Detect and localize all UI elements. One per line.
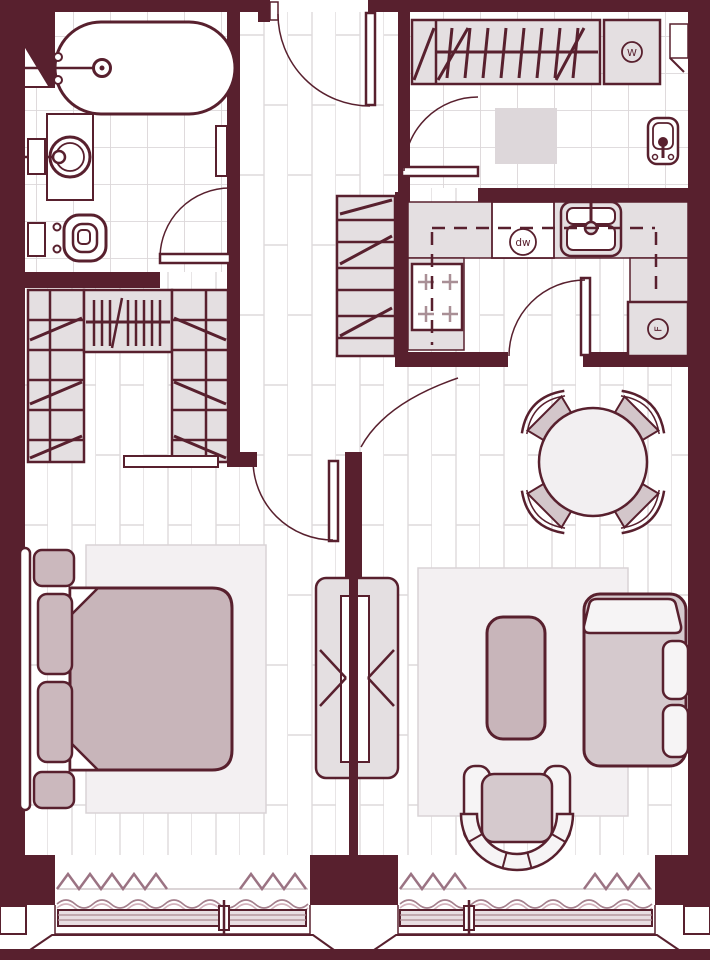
- wall-kitchen-south-a: [395, 352, 508, 367]
- dishwasher-label: dw: [515, 237, 531, 249]
- closet-unit-hangers: [84, 290, 172, 352]
- bed-duvet: [70, 588, 232, 770]
- curtain-zigzag: [584, 874, 650, 889]
- laundry-mat: [495, 108, 557, 164]
- closet-threshold: [124, 456, 218, 467]
- kitchen-door-leaf: [581, 278, 590, 355]
- sofa-back-cushion-2: [663, 705, 688, 757]
- entry-door-jamb: [258, 0, 270, 22]
- pillow-top: [38, 594, 72, 674]
- window-pier-right: [655, 855, 710, 905]
- balcony-edge-strip: [0, 951, 710, 960]
- wall-through-wardrobe: [349, 578, 358, 778]
- floor-plan-drawing: W dw: [0, 0, 710, 960]
- curtain-zigzag: [57, 874, 167, 889]
- armchair-seat: [482, 774, 552, 842]
- laundry-basin: [648, 118, 678, 164]
- cistern-panel: [28, 223, 45, 256]
- floor-plan-page: W dw: [0, 0, 710, 960]
- wall-right: [688, 0, 710, 855]
- laundry-door-leaf: [402, 167, 478, 176]
- divider-wardrobe: [316, 578, 398, 778]
- wall-top-b: [368, 0, 710, 12]
- wall-center-column: [345, 452, 362, 582]
- fridge-label: F: [654, 326, 665, 332]
- balcony-corner-right: [684, 906, 710, 934]
- nightstand-bottom: [34, 772, 74, 808]
- headboard: [20, 548, 30, 810]
- closet-unit-left: [28, 290, 84, 462]
- curtain-zigzag: [400, 874, 466, 889]
- hall-closet: [412, 20, 600, 84]
- living-window-curtains: [400, 874, 652, 912]
- wall-top-a: [25, 0, 270, 12]
- pillow-bottom: [38, 682, 72, 762]
- wall-laundry-south-b: [478, 188, 690, 202]
- dishwasher: dw: [492, 202, 554, 258]
- wall-bathroom-south: [25, 272, 160, 288]
- service-panel: [216, 126, 227, 176]
- bathroom-door-leaf: [160, 254, 230, 263]
- dining-table: [539, 408, 647, 516]
- towel-radiator: [28, 139, 45, 174]
- wall-kitchen-west: [395, 192, 408, 367]
- stove: [412, 264, 462, 330]
- armchair: [461, 766, 573, 870]
- window-pier-left: [0, 855, 55, 905]
- entry-door-leaf: [366, 13, 375, 105]
- washer-label: W: [627, 48, 637, 59]
- curtain-zigzag: [240, 874, 306, 889]
- hall-shelf-unit: [337, 196, 395, 356]
- entry-door-stop: [270, 2, 278, 20]
- fridge: F: [628, 302, 688, 356]
- nightstand-top: [34, 550, 74, 586]
- closet-unit-right: [172, 290, 228, 462]
- balcony-corner-left: [0, 906, 26, 934]
- sofa-back-cushion-1: [663, 641, 688, 699]
- washing-machine: W: [604, 20, 660, 84]
- bedroom-door-leaf: [329, 461, 338, 541]
- coffee-table: [487, 617, 545, 739]
- bedroom-window-curtains: [57, 874, 308, 912]
- sofa: [584, 594, 688, 766]
- window-pier-middle: [310, 855, 398, 905]
- sofa-pillow: [584, 599, 681, 633]
